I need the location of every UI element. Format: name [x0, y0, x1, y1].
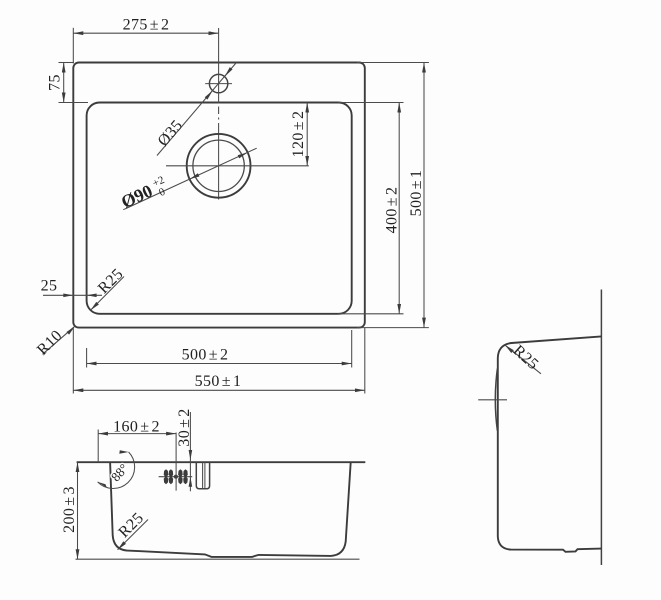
svg-text:Ø35: Ø35: [155, 117, 187, 150]
svg-text:275±2: 275±2: [123, 17, 170, 34]
svg-text:550±1: 550±1: [195, 373, 242, 390]
svg-text:400±2: 400±2: [384, 187, 401, 234]
svg-text:R25: R25: [95, 265, 127, 297]
svg-text:R10: R10: [34, 327, 66, 359]
svg-text:160±2: 160±2: [113, 418, 160, 435]
svg-text:0: 0: [157, 186, 167, 199]
svg-text:25: 25: [41, 278, 58, 295]
svg-text:120±2: 120±2: [290, 111, 307, 158]
svg-text:Ø90: Ø90: [118, 181, 155, 213]
svg-text:30±2: 30±2: [176, 408, 193, 446]
svg-text:200±3: 200±3: [61, 486, 78, 533]
svg-text:R25: R25: [115, 509, 147, 541]
svg-text:500±2: 500±2: [182, 347, 229, 364]
svg-text:500±1: 500±1: [408, 170, 425, 217]
svg-text:75: 75: [47, 74, 64, 91]
svg-text:R25: R25: [510, 342, 542, 373]
